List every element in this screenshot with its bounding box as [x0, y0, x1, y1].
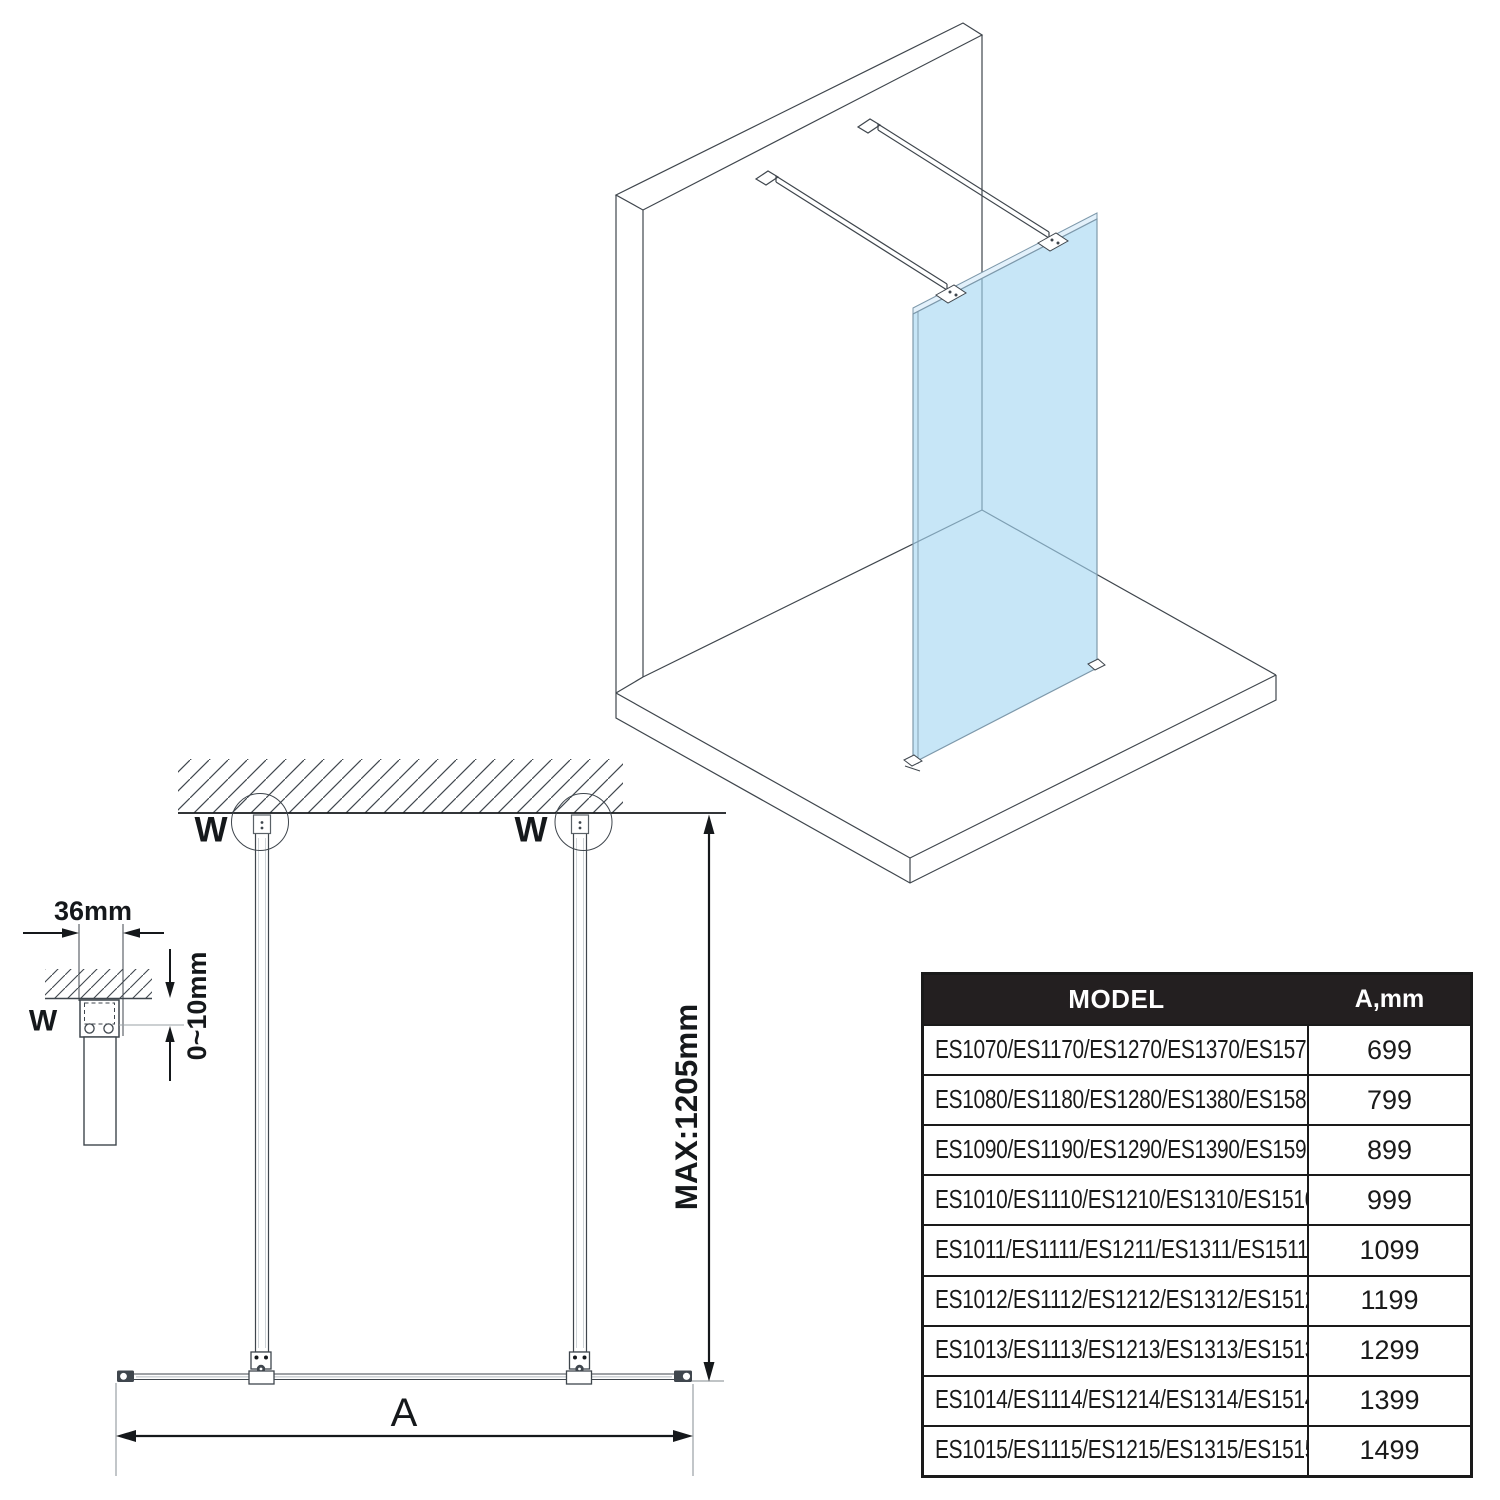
front-view: W W MAX:1205mm A — [116, 759, 726, 1476]
model-codes: ES1014/ES1114/ES1214/ES1314/ES1514 — [935, 1386, 1309, 1415]
ceiling-post-left — [249, 815, 274, 1384]
anchor-label-left: W — [194, 811, 227, 850]
model-codes: ES1012/ES1112/ES1212/ES1312/ES1512 — [935, 1286, 1309, 1315]
wall-profile-bar — [118, 1374, 692, 1380]
model-cell: ES1014/ES1114/ES1214/ES1314/ES1514 — [924, 1377, 1309, 1425]
model-codes: ES1010/ES1110/ES1210/ES1310/ES1510 — [935, 1186, 1309, 1215]
model-cell: ES1070/ES1170/ES1270/ES1370/ES1570 — [924, 1026, 1309, 1074]
dimension-cell: 799 — [1309, 1076, 1470, 1124]
dimension-cell: 1199 — [1309, 1277, 1470, 1325]
model-codes: ES1080/ES1180/ES1280/ES1380/ES1580 — [935, 1086, 1309, 1115]
model-cell: ES1090/ES1190/ES1290/ES1390/ES1590 — [924, 1126, 1309, 1174]
dimension-cell: 899 — [1309, 1126, 1470, 1174]
table-row: ES1012/ES1112/ES1212/ES1312/ES15121199 — [924, 1275, 1470, 1325]
max-height-dimension: MAX:1205mm — [668, 815, 724, 1382]
table-header-row: MODEL A,mm — [924, 975, 1470, 1024]
model-cell: ES1013/ES1113/ES1213/ES1313/ES1513 — [924, 1327, 1309, 1375]
model-codes: ES1011/ES1111/ES1211/ES1311/ES1511 — [935, 1236, 1308, 1265]
model-codes: ES1090/ES1190/ES1290/ES1390/ES1590 — [935, 1136, 1309, 1165]
model-codes: ES1070/ES1170/ES1270/ES1370/ES1570 — [935, 1036, 1309, 1065]
isometric-view — [616, 23, 1276, 883]
bracket-detail-inset: 36mm — [23, 896, 212, 1145]
product-spec-sheet: W W MAX:1205mm A 36mm — [0, 0, 1500, 1500]
table-row: ES1070/ES1170/ES1270/ES1370/ES1570699 — [924, 1024, 1470, 1074]
table-row: ES1013/ES1113/ES1213/ES1313/ES15131299 — [924, 1325, 1470, 1375]
inset-bracket — [80, 1000, 119, 1037]
table-row: ES1011/ES1111/ES1211/ES1311/ES15111099 — [924, 1224, 1470, 1274]
table-row: ES1010/ES1110/ES1210/ES1310/ES1510999 — [924, 1174, 1470, 1224]
model-cell: ES1080/ES1180/ES1280/ES1380/ES1580 — [924, 1076, 1309, 1124]
gap-dimension: 0~10mm — [165, 949, 212, 1081]
model-codes: ES1015/ES1115/ES1215/ES1315/ES1515 — [935, 1436, 1309, 1465]
width-dim-label: A — [391, 1391, 418, 1435]
table-row: ES1014/ES1114/ES1214/ES1314/ES15141399 — [924, 1375, 1470, 1425]
model-cell: ES1010/ES1110/ES1210/ES1310/ES1510 — [924, 1176, 1309, 1224]
table-body: ES1070/ES1170/ES1270/ES1370/ES1570699ES1… — [924, 1024, 1470, 1475]
dimension-cell: 999 — [1309, 1176, 1470, 1224]
dimension-cell: 1099 — [1309, 1226, 1470, 1274]
dimension-cell: 699 — [1309, 1026, 1470, 1074]
inset-bar — [84, 1037, 116, 1145]
ceiling-post-right — [567, 815, 592, 1384]
model-cell: ES1011/ES1111/ES1211/ES1311/ES1511 — [924, 1226, 1309, 1274]
bar-width-label: 36mm — [54, 896, 132, 926]
dimension-cell: 1399 — [1309, 1377, 1470, 1425]
model-cell: ES1012/ES1112/ES1212/ES1312/ES1512 — [924, 1277, 1309, 1325]
anchor-label-right: W — [514, 811, 547, 850]
dimension-cell: 1299 — [1309, 1327, 1470, 1375]
model-spec-table: MODEL A,mm ES1070/ES1170/ES1270/ES1370/E… — [921, 972, 1473, 1478]
width-dimension: A — [116, 1383, 693, 1476]
dimension-cell: 1499 — [1309, 1427, 1470, 1475]
ceiling-hatch — [178, 759, 623, 813]
model-codes: ES1013/ES1113/ES1213/ES1313/ES1513 — [935, 1336, 1309, 1365]
inset-wall-hatch — [45, 969, 152, 998]
table-header-dimension: A,mm — [1309, 975, 1470, 1024]
inset-anchor-label: W — [29, 1005, 58, 1038]
table-row: ES1015/ES1115/ES1215/ES1315/ES15151499 — [924, 1425, 1470, 1475]
table-row: ES1090/ES1190/ES1290/ES1390/ES1590899 — [924, 1124, 1470, 1174]
gap-range-label: 0~10mm — [182, 952, 212, 1061]
model-cell: ES1015/ES1115/ES1215/ES1315/ES1515 — [924, 1427, 1309, 1475]
table-header-model: MODEL — [924, 975, 1309, 1024]
max-height-label: MAX:1205mm — [668, 1004, 704, 1211]
table-row: ES1080/ES1180/ES1280/ES1380/ES1580799 — [924, 1074, 1470, 1124]
